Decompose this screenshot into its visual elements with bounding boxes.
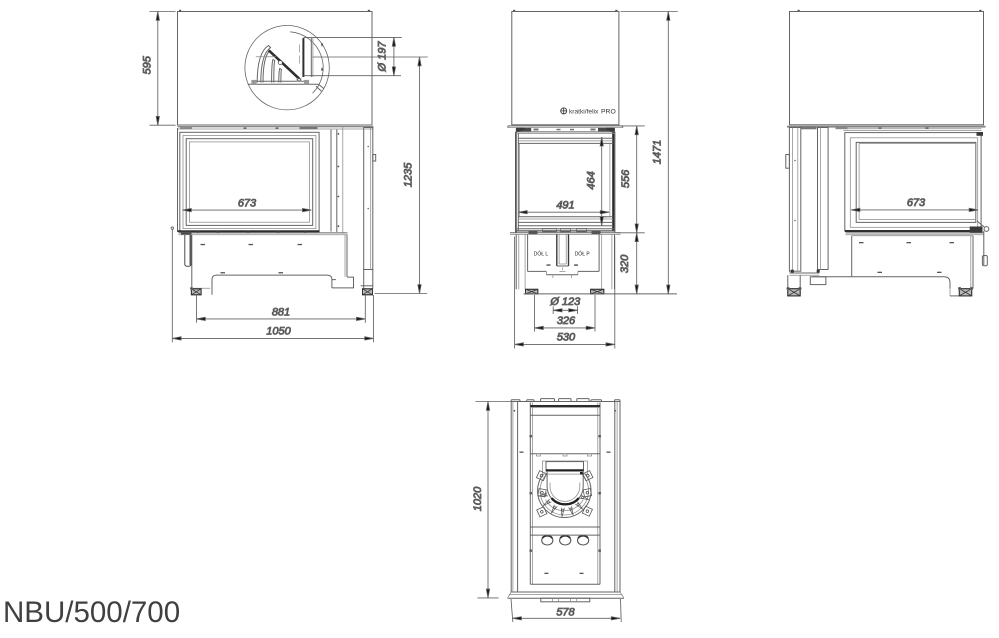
svg-text:Ø 197: Ø 197 <box>377 41 389 73</box>
svg-text:Ø 123: Ø 123 <box>549 296 581 308</box>
svg-text:595: 595 <box>142 55 154 74</box>
svg-text:464: 464 <box>585 171 597 189</box>
svg-text:NBU/500/700: NBU/500/700 <box>3 596 180 629</box>
svg-text:DÓŁ P: DÓŁ P <box>575 250 591 257</box>
svg-text:1235: 1235 <box>403 162 415 187</box>
svg-text:673: 673 <box>238 198 257 210</box>
svg-text:556: 556 <box>620 169 632 188</box>
svg-text:326: 326 <box>557 315 576 327</box>
svg-text:320: 320 <box>619 254 631 273</box>
svg-text:881: 881 <box>272 306 290 318</box>
svg-text:673: 673 <box>907 197 926 209</box>
svg-text:491: 491 <box>556 200 574 212</box>
svg-text:1050: 1050 <box>266 326 291 338</box>
svg-text:1471: 1471 <box>651 140 663 164</box>
svg-text:578: 578 <box>556 606 575 618</box>
svg-text:DÓŁ L: DÓŁ L <box>534 250 549 257</box>
svg-text:530: 530 <box>557 332 576 344</box>
svg-text:kratki/felix: kratki/felix <box>569 108 599 115</box>
svg-text:PRO: PRO <box>601 108 616 115</box>
svg-text:1020: 1020 <box>472 486 484 511</box>
